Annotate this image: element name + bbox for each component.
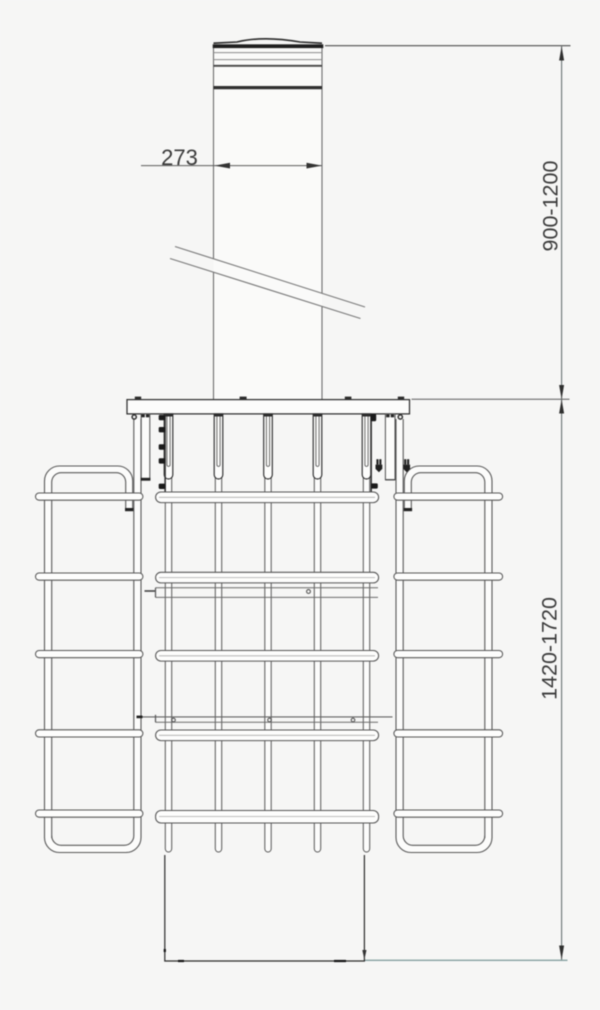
- svg-text:273: 273: [161, 145, 198, 170]
- svg-text:1420-1720: 1420-1720: [538, 597, 562, 700]
- svg-text:900-1200: 900-1200: [539, 161, 563, 252]
